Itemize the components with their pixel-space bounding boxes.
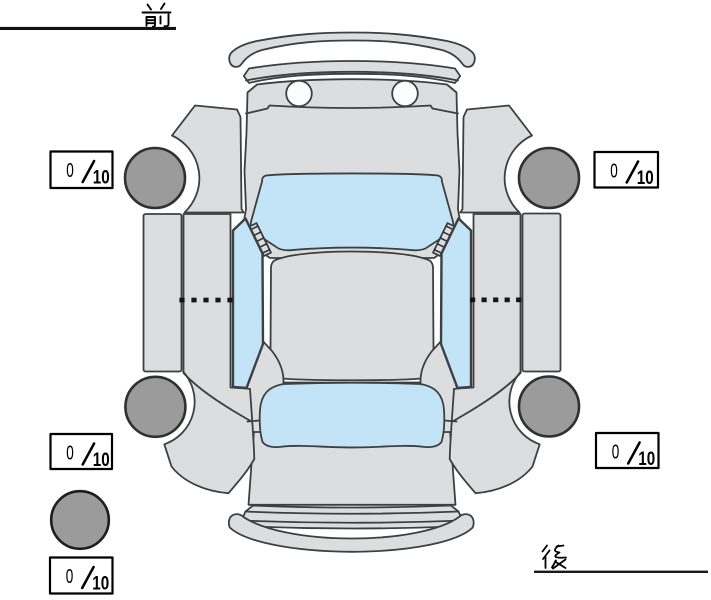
- svg-text:10: 10: [92, 572, 109, 594]
- svg-text:0: 0: [66, 158, 74, 182]
- svg-text:0: 0: [610, 159, 618, 183]
- svg-text:0: 0: [66, 441, 74, 465]
- svg-text:10: 10: [93, 166, 110, 188]
- svg-text:10: 10: [93, 448, 110, 470]
- svg-text:0: 0: [612, 440, 620, 464]
- svg-text:10: 10: [638, 447, 655, 469]
- svg-text:10: 10: [637, 166, 654, 188]
- svg-text:0: 0: [66, 564, 74, 588]
